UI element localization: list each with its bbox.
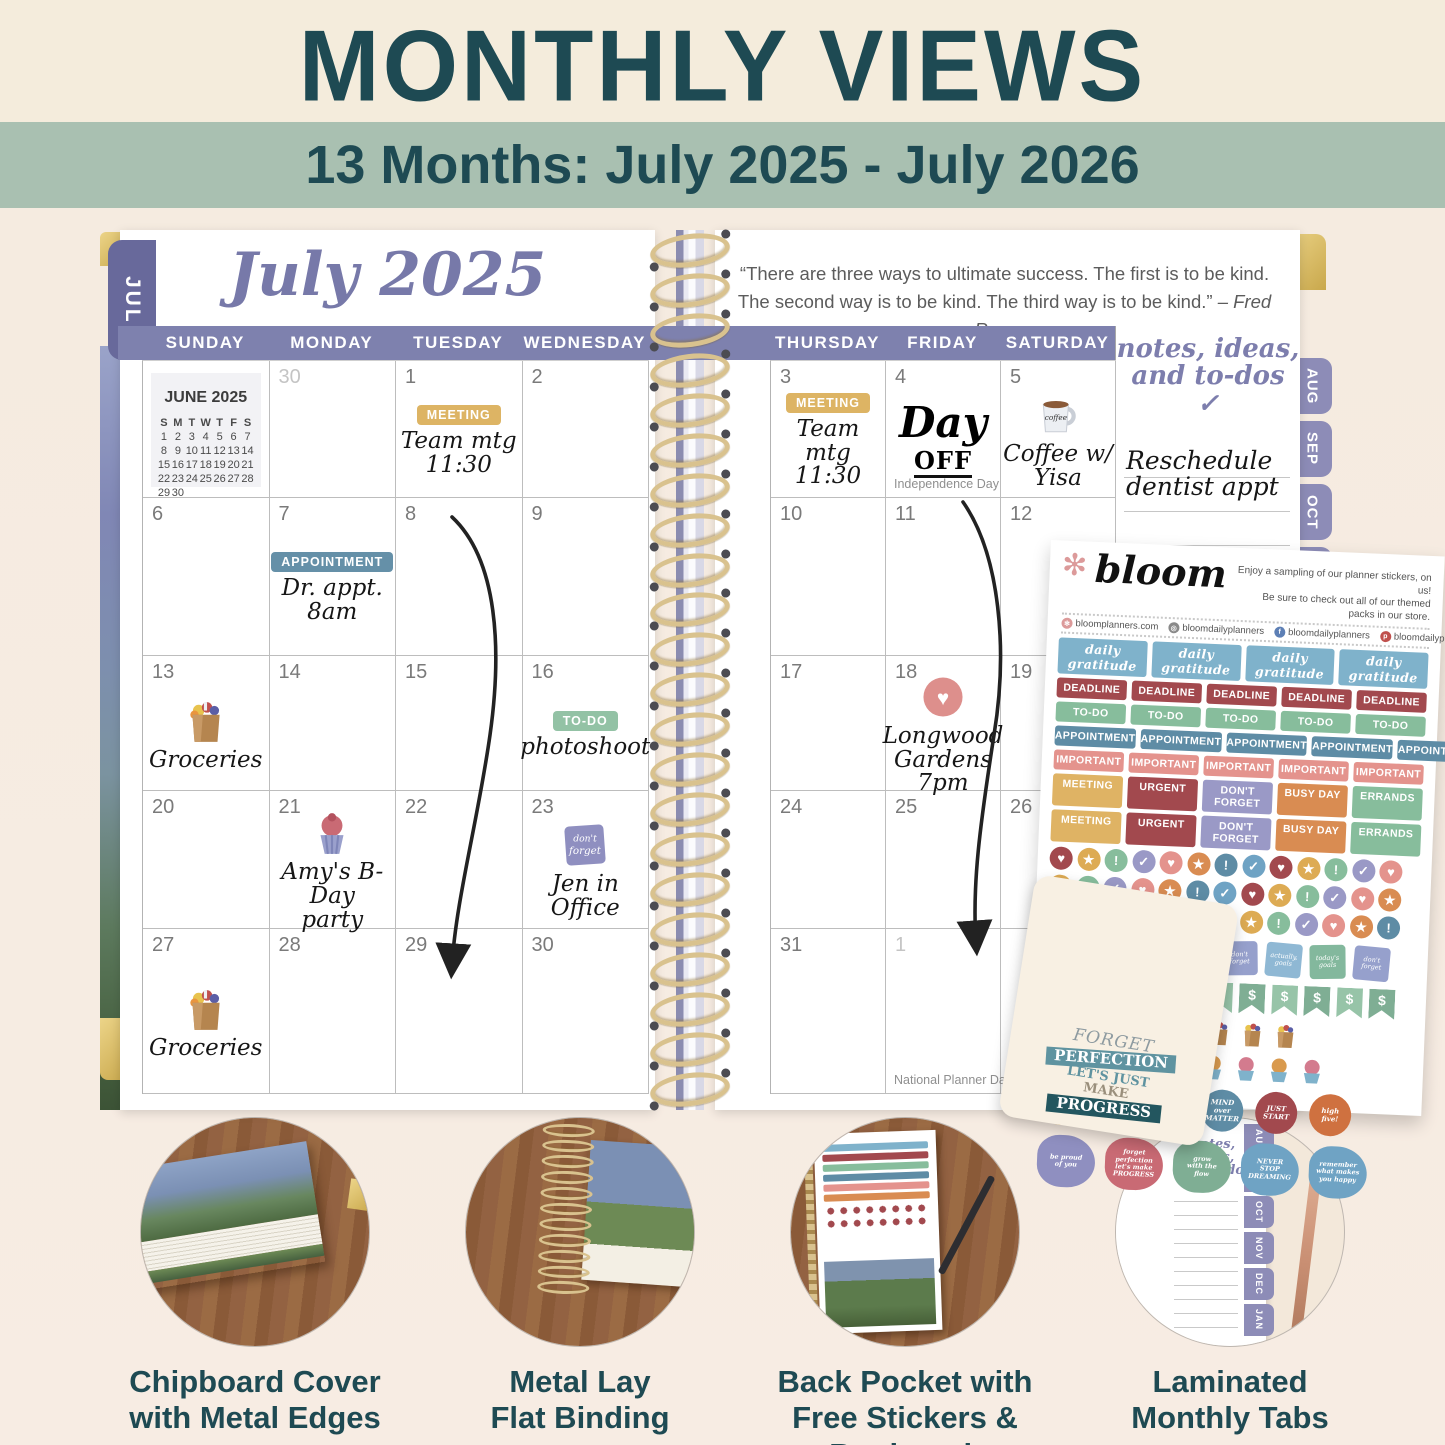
social-instagram-icon: ◎bloomdailyplanners (1168, 622, 1264, 637)
coil-loop (648, 1028, 731, 1071)
sticker-important: IMPORTANT (1203, 756, 1274, 779)
sticker-tagline: Enjoy a sampling of our planner stickers… (1233, 564, 1432, 624)
dollar-flag: $ (1238, 983, 1265, 1014)
round-sticker: JUST START (1254, 1091, 1298, 1135)
feature-caption-chipboard: Chipboard Cover with Metal Edges (87, 1364, 423, 1437)
handwritten-note: Longwood Gardens 7pm (883, 725, 1004, 796)
day-number: 14 (279, 661, 301, 684)
left-month-grid: JUNE 2025SMTWTFS123456789101112131415161… (142, 360, 649, 1094)
coil-loop (540, 1186, 592, 1201)
coil-loop (648, 509, 731, 552)
handwritten-note: Jen in Office (525, 873, 647, 920)
day-cell-3: 3MEETINGTeam mtg 11:30 (771, 361, 886, 498)
mini-june-calendar: JUNE 2025SMTWTFS123456789101112131415161… (151, 373, 261, 487)
coil-loop (539, 1217, 591, 1232)
subtitle: 13 Months: July 2025 - July 2026 (305, 134, 1139, 196)
svg-text:don't: don't (573, 834, 597, 845)
day-number: 22 (405, 796, 427, 819)
day-number: 30 (279, 366, 301, 389)
sticker-appointment: APPOINTMENT (1397, 740, 1445, 763)
day-header-friday: FRIDAY (885, 326, 1000, 360)
day-cell-22: 22 (396, 791, 523, 929)
day-number: 29 (405, 934, 427, 957)
feature-photo-metal-binding (466, 1118, 694, 1346)
day-number: 30 (532, 934, 554, 957)
sticker-dot: ✓ (1351, 859, 1375, 883)
social-facebook-icon: fbloomdailyplanners (1274, 626, 1370, 641)
left-day-headers: SUNDAYMONDAYTUESDAYWEDNESDAY (142, 326, 648, 360)
day-cell-7: 7APPOINTMENTDr. appt. 8am (270, 498, 397, 656)
sticker-dot: ! (1324, 858, 1348, 882)
sticker-dot: ✓ (1213, 881, 1237, 905)
sticker-sheet-header: ✻ bloom Enjoy a sampling of our planner … (1060, 550, 1432, 623)
sticker-dot: ! (1214, 853, 1238, 877)
day-cell-27: 27Groceries (143, 929, 270, 1094)
sticker-meeting: MEETING (1050, 809, 1121, 844)
pinterest-icon: p (1380, 631, 1391, 642)
coil-loop (648, 429, 731, 472)
quote-sticker: remember what makes you happy (1308, 1145, 1368, 1199)
month-title: July 2025 (120, 240, 655, 310)
day-header-wednesday: WEDNESDAY (522, 326, 649, 360)
day-cell-31: 31 (771, 929, 886, 1094)
day-number: 8 (405, 503, 416, 526)
left-page: July 2025 JUNE 2025SMTWTFS12345678910111… (120, 230, 655, 1110)
day-cell-24: 24 (771, 791, 886, 929)
sticker-to-do: TO-DO (1355, 714, 1426, 737)
flower-icon: ✻ (1061, 618, 1072, 629)
sticker-square: today's goals (1309, 945, 1345, 979)
coil-loop (648, 309, 731, 352)
sticker-dot: ! (1267, 911, 1291, 935)
coil-loop (541, 1155, 593, 1170)
day-cell-11: 11 (886, 498, 1001, 656)
coil-loop (648, 269, 731, 312)
day-cell-29: 29 (396, 929, 523, 1094)
day-cell-21: 21Amy's B-Day party (270, 791, 397, 929)
grocery-bag-icon (183, 698, 229, 744)
sticker-deadline: DEADLINE (1356, 690, 1427, 713)
planner-page-photo (581, 1140, 694, 1288)
day-number: 9 (532, 503, 543, 526)
sticker-daily-gratitude: daily gratitude (1057, 637, 1147, 677)
coil-loop (648, 389, 731, 432)
sticker-label: TO-DO (553, 711, 618, 731)
day-cell-14: 14 (270, 656, 397, 791)
svg-text:♥: ♥ (937, 687, 949, 710)
quote-sticker: be proud of you (1036, 1134, 1096, 1188)
day-number: 13 (152, 661, 174, 684)
day-number: 23 (532, 796, 554, 819)
sticker-to-do: TO-DO (1280, 711, 1351, 734)
facebook-icon: f (1274, 626, 1285, 637)
sticker-dot: ♥ (1379, 860, 1403, 884)
coil-loop (648, 708, 731, 751)
svg-text:forget: forget (568, 846, 602, 858)
quote-sticker: NEVER STOP DREAMING (1240, 1143, 1300, 1197)
day-cell: JUNE 2025SMTWTFS123456789101112131415161… (143, 361, 270, 498)
day-number: 28 (279, 934, 301, 957)
coil-loop (537, 1280, 589, 1295)
notes-handwriting: Reschedule dentist appt (1126, 448, 1294, 500)
dollar-flag: $ (1368, 989, 1395, 1020)
mini-tab-jan: JAN (1244, 1304, 1274, 1336)
handwritten-note: Dr. appt. 8am (282, 577, 383, 624)
sticker-to-do: TO-DO (1055, 701, 1126, 724)
coil-loop (648, 868, 731, 911)
day-header-monday: MONDAY (269, 326, 396, 360)
day-number: 11 (895, 503, 916, 526)
coil-loop (648, 948, 731, 991)
notes-title: notes, ideas, and to-dos ✓ (1116, 336, 1300, 418)
day-cell-8: 8 (396, 498, 523, 656)
sticker-appointment: APPOINTMENT (1140, 729, 1222, 752)
sticker-deadline: DEADLINE (1281, 687, 1352, 710)
product-image: MONTHLY VIEWS 13 Months: July 2025 - Jul… (0, 0, 1445, 1445)
quote-sticker: grow with the flow (1172, 1140, 1232, 1194)
day-header-bar: SUNDAYMONDAYTUESDAYWEDNESDAY THURSDAYFRI… (118, 326, 1115, 360)
feature-caption-binding: Metal Lay Flat Binding (412, 1364, 748, 1437)
day-number: 15 (405, 661, 427, 684)
day-header-tuesday: TUESDAY (395, 326, 522, 360)
sticker-dot: ★ (1349, 915, 1373, 939)
sticker-dot: ✓ (1294, 913, 1318, 937)
coil-loop (648, 988, 731, 1031)
handwritten-note: Team mtg 11:30 (773, 418, 883, 489)
grocery-bag-icon (1240, 1020, 1265, 1048)
day-cell-16: 16TO-DOphotoshoot (523, 656, 650, 791)
day-number: 2 (532, 366, 543, 389)
day-cell-2: 2 (523, 361, 650, 498)
sticker-deadline: DEADLINE (1131, 681, 1202, 704)
sticker-square: don't forget (1352, 945, 1391, 982)
cupcake-icon (1234, 1055, 1259, 1082)
day-number: 31 (780, 934, 802, 957)
dollar-flag: $ (1336, 987, 1363, 1018)
sticker-quote-row: be proud of youforget perfection let's m… (1036, 1134, 1408, 1201)
flower-icon: ✻ (1061, 550, 1087, 581)
subtitle-banner: 13 Months: July 2025 - July 2026 (0, 122, 1445, 208)
mini-tab-nov: NOV (1244, 1232, 1274, 1264)
coil-loop (542, 1139, 594, 1154)
sticker-dot: ♥ (1322, 914, 1346, 938)
sticker-sheet-photo (814, 1130, 943, 1334)
day-number: 10 (780, 503, 802, 526)
sticker-dot: ! (1295, 885, 1319, 909)
sticker-meeting: MEETING (1052, 773, 1123, 808)
social-flower-icon: ✻bloomplanners.com (1061, 618, 1158, 633)
feature-photo-chipboard-cover (141, 1118, 369, 1346)
bookmark: FORGET PERFECTION LET'S JUST MAKE PROGRE… (998, 874, 1240, 1147)
day-number: 21 (279, 796, 301, 819)
feature-caption-tabs: Laminated Monthly Tabs (1062, 1364, 1398, 1437)
handwritten-note: Amy's B-Day party (272, 861, 394, 932)
sticker-to-do: TO-DO (1205, 708, 1276, 731)
sticker-dot: ♥ (1159, 851, 1183, 875)
sticker-appointment: APPOINTMENT (1312, 736, 1394, 759)
grocery-bag-icon (1273, 1022, 1298, 1050)
day-cell-30: 30 (270, 361, 397, 498)
sticker-appointment: APPOINTMENT (1054, 725, 1136, 748)
quote-sticker: forget perfection let's make PROGRESS (1104, 1137, 1164, 1191)
day-number: 18 (895, 661, 917, 684)
day-header-saturday: SATURDAY (1000, 326, 1115, 360)
sticker-don-t-forget: DON'T FORGET (1202, 780, 1273, 815)
day-cell-9: 9 (523, 498, 650, 656)
coil-loop (539, 1233, 591, 1248)
sticker-appointment: APPOINTMENT (1226, 733, 1308, 756)
coil-loop (648, 1068, 731, 1111)
sticker-urgent: URGENT (1125, 812, 1196, 847)
sticker-dot: ✓ (1242, 854, 1266, 878)
day-cell-15: 15 (396, 656, 523, 791)
day-number: 1 (405, 366, 416, 389)
day-number: 19 (1010, 661, 1032, 684)
coil-loop (543, 1123, 595, 1138)
coil-loop (540, 1202, 592, 1217)
sticker-dot: ✓ (1323, 886, 1347, 910)
sticker-dot: ★ (1077, 847, 1101, 871)
sticker-errands: ERRANDS (1350, 822, 1421, 857)
dont-forget-icon: don'tforget (562, 822, 608, 868)
planner-cover-edge (100, 346, 122, 1110)
sticker-important: IMPORTANT (1053, 749, 1124, 772)
coil-loop (648, 788, 731, 831)
sticker-dot: ♥ (1350, 887, 1374, 911)
handwritten-note: Team mtg 11:30 (401, 430, 517, 477)
sticker-label: MEETING (417, 405, 501, 425)
pen (938, 1175, 996, 1275)
sticker-important: IMPORTANT (1128, 752, 1199, 775)
sticker-important: IMPORTANT (1353, 762, 1424, 785)
sticker-dot: ♥ (1049, 846, 1073, 870)
gold-coil (537, 1123, 595, 1295)
coil-loop (648, 349, 731, 392)
spiral-binding (650, 234, 730, 1106)
day-number: 3 (780, 366, 791, 389)
cupcake-icon (309, 810, 355, 856)
day-cell-20: 20 (143, 791, 270, 929)
sticker-dot: ★ (1378, 888, 1402, 912)
sticker-daily-gratitude: daily gratitude (1245, 645, 1335, 685)
sticker-deadline: DEADLINE (1206, 684, 1277, 707)
day-cell-10: 10 (771, 498, 886, 656)
coil-loop (648, 549, 731, 592)
day-cell-25: 25 (886, 791, 1001, 929)
brand-logo: bloom (1094, 552, 1227, 592)
day-cell-28: 28 (270, 929, 397, 1094)
sticker-dot: ★ (1187, 852, 1211, 876)
day-cell-17: 17 (771, 656, 886, 791)
day-cell-30: 30 (523, 929, 650, 1094)
day-number: 20 (152, 796, 174, 819)
feature-caption-pocket: Back Pocket with Free Stickers & Bookmar… (737, 1364, 1073, 1445)
sticker-dot: ♥ (1269, 855, 1293, 879)
cupcake-icon (1299, 1058, 1324, 1085)
handwritten-note: Groceries (149, 749, 262, 773)
handwritten-note: Day (899, 404, 987, 442)
coil-loop (541, 1170, 593, 1185)
mini-tab-dec: DEC (1244, 1268, 1274, 1300)
day-number: 1 (895, 934, 906, 957)
day-number: 5 (1010, 366, 1021, 389)
feature-photo-back-pocket (791, 1118, 1019, 1346)
day-cell-4: 4DayOFFIndependence Day (886, 361, 1001, 498)
sticker-dot: ✓ (1132, 850, 1156, 874)
day-number: 27 (152, 934, 174, 957)
day-header-sunday: SUNDAY (142, 326, 269, 360)
sticker-dot: ★ (1296, 857, 1320, 881)
sticker-busy-day: BUSY DAY (1277, 783, 1348, 818)
round-sticker: high five! (1308, 1093, 1352, 1137)
sticker-busy-day: BUSY DAY (1275, 819, 1346, 854)
sticker-dot: ♥ (1240, 882, 1264, 906)
dollar-flag: $ (1271, 985, 1298, 1016)
dollar-flag: $ (1303, 986, 1330, 1017)
cupcake-icon (1266, 1057, 1291, 1084)
day-cell-1: 1MEETINGTeam mtg 11:30 (396, 361, 523, 498)
sticker-square: actually, goals (1264, 941, 1303, 978)
day-header-thursday: THURSDAY (770, 326, 885, 360)
coil-loop (538, 1265, 590, 1280)
sticker-daily-gratitude: daily gratitude (1151, 641, 1241, 681)
coil-loop (648, 669, 731, 712)
sticker-dot: ★ (1239, 910, 1263, 934)
day-cell-13: 13Groceries (143, 656, 270, 791)
page-title: MONTHLY VIEWS (0, 8, 1445, 124)
planner-corner-photo (141, 1141, 325, 1293)
mini-tab-oct: OCT (1244, 1196, 1274, 1228)
sticker-daily-gratitude: daily gratitude (1338, 649, 1428, 689)
handwritten-note: Coffee w/ Yisa (1003, 443, 1113, 490)
sticker-urgent: URGENT (1127, 776, 1198, 811)
sticker-don-t-forget: DON'T FORGET (1200, 816, 1271, 851)
coil-loop (648, 469, 731, 512)
coil-loop (648, 229, 731, 272)
coil-loop (648, 589, 731, 632)
day-number: 17 (780, 661, 802, 684)
holiday-label: Independence Day (894, 477, 999, 491)
sticker-label: APPOINTMENT (271, 552, 393, 572)
day-number: 24 (780, 796, 802, 819)
day-cell-1: 1National Planner Day (886, 929, 1001, 1094)
sticker-label: MEETING (786, 393, 870, 413)
instagram-icon: ◎ (1168, 622, 1179, 633)
right-day-headers: THURSDAYFRIDAYSATURDAY (770, 326, 1115, 360)
day-number: 26 (1010, 796, 1032, 819)
day-number: 25 (895, 796, 917, 819)
social-pinterest-icon: pbloomdailyplanners (1380, 631, 1445, 646)
coil-loop (648, 629, 731, 672)
handwritten-note: photoshoot (520, 736, 650, 760)
day-number: 6 (152, 503, 163, 526)
metal-edge (347, 1178, 369, 1211)
day-cell-23: 23don'tforgetJen in Office (523, 791, 650, 929)
sticker-dot: ! (1104, 849, 1128, 873)
day-cell-5: 5coffeeCoffee w/ Yisa (1001, 361, 1116, 498)
handwritten-note: Groceries (149, 1037, 262, 1061)
coil-loop (648, 828, 731, 871)
day-cell-6: 6 (143, 498, 270, 656)
coil-loop (648, 908, 731, 951)
coffee-mug-icon: coffee (1035, 392, 1081, 438)
svg-text:coffee: coffee (1045, 413, 1067, 422)
sticker-deadline: DEADLINE (1056, 677, 1127, 700)
sticker-to-do: TO-DO (1130, 705, 1201, 728)
holiday-label: National Planner Day (894, 1073, 1012, 1087)
coil-loop (538, 1249, 590, 1264)
sticker-errands: ERRANDS (1352, 786, 1423, 821)
grocery-bag-icon (183, 986, 229, 1032)
day-number: 16 (532, 661, 554, 684)
day-cell-18: 18♥Longwood Gardens 7pm (886, 656, 1001, 791)
day-number: 12 (1010, 503, 1032, 526)
heart-circle-icon: ♥ (920, 674, 966, 720)
handwritten-note: OFF (914, 446, 972, 478)
coil-loop (648, 748, 731, 791)
sticker-dot: ! (1377, 916, 1401, 940)
day-number: 7 (279, 503, 290, 526)
sticker-important: IMPORTANT (1278, 759, 1349, 782)
sticker-dot: ★ (1268, 883, 1292, 907)
day-number: 4 (895, 366, 906, 389)
